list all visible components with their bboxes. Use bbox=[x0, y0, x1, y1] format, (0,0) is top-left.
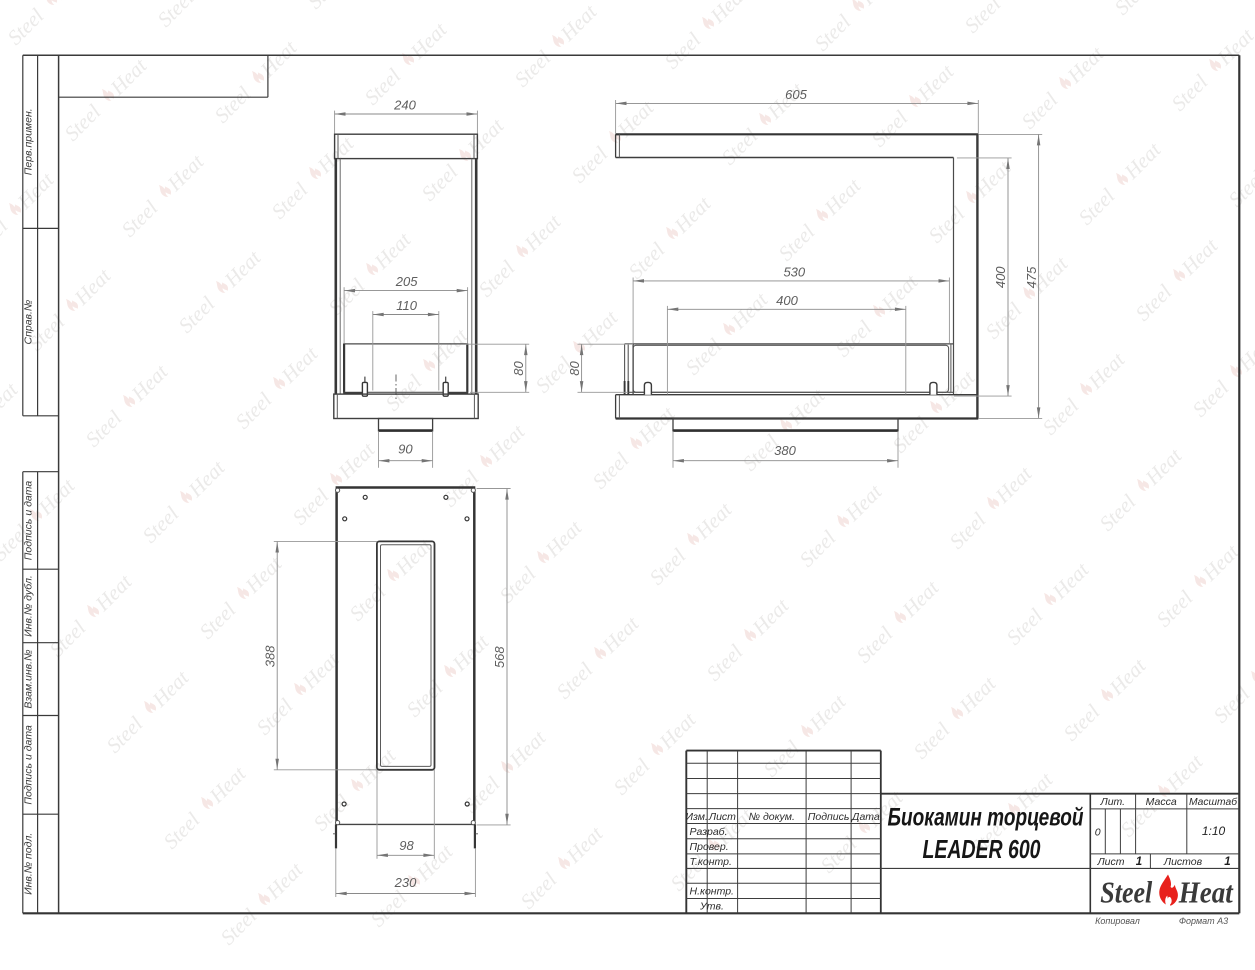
svg-text:80: 80 bbox=[511, 361, 526, 376]
svg-text:Steel: Steel bbox=[1100, 875, 1152, 910]
svg-text:Инв.№ дубл.: Инв.№ дубл. bbox=[23, 575, 35, 637]
svg-text:Биокамин торцевой: Биокамин торцевой bbox=[888, 804, 1084, 832]
svg-text:1: 1 bbox=[1224, 856, 1230, 868]
svg-text:Подпись и дата: Подпись и дата bbox=[23, 481, 35, 561]
svg-text:Подпись и дата: Подпись и дата bbox=[23, 725, 35, 805]
svg-text:Дата: Дата bbox=[851, 811, 880, 823]
svg-text:388: 388 bbox=[262, 645, 277, 667]
svg-text:№ докум.: № докум. bbox=[749, 811, 795, 823]
svg-text:Взам.инв.№: Взам.инв.№ bbox=[23, 650, 35, 709]
svg-text:Изм.: Изм. bbox=[686, 811, 708, 823]
svg-text:LEADER 600: LEADER 600 bbox=[923, 834, 1041, 864]
svg-text:Н.контр.: Н.контр. bbox=[690, 886, 734, 898]
svg-text:80: 80 bbox=[567, 361, 582, 376]
svg-text:Heat: Heat bbox=[1178, 875, 1234, 910]
svg-text:Листов: Листов bbox=[1163, 856, 1203, 868]
svg-text:568: 568 bbox=[492, 646, 507, 668]
svg-text:400: 400 bbox=[776, 293, 798, 308]
svg-text:Формат А3: Формат А3 bbox=[1179, 916, 1228, 926]
svg-text:Лист: Лист bbox=[708, 811, 736, 823]
svg-text:1:10: 1:10 bbox=[1202, 824, 1226, 838]
svg-text:Перв.примен.: Перв.примен. bbox=[23, 108, 35, 175]
svg-text:Справ.№: Справ.№ bbox=[23, 300, 35, 345]
svg-text:Лит.: Лит. bbox=[1100, 796, 1126, 808]
svg-text:Подпись: Подпись bbox=[808, 811, 850, 823]
svg-text:0: 0 bbox=[1095, 827, 1101, 839]
svg-text:205: 205 bbox=[395, 274, 418, 289]
svg-text:530: 530 bbox=[783, 264, 805, 279]
svg-text:90: 90 bbox=[398, 442, 413, 457]
svg-text:Копировал: Копировал bbox=[1095, 916, 1140, 926]
svg-text:Инв.№ подл.: Инв.№ подл. bbox=[23, 833, 35, 895]
svg-text:475: 475 bbox=[1024, 266, 1039, 288]
svg-text:Утв.: Утв. bbox=[699, 901, 724, 913]
svg-text:Разраб.: Разраб. bbox=[690, 826, 728, 838]
svg-text:400: 400 bbox=[993, 266, 1008, 288]
svg-text:Масса: Масса bbox=[1146, 796, 1177, 808]
svg-text:230: 230 bbox=[394, 875, 417, 890]
svg-text:98: 98 bbox=[399, 838, 414, 853]
svg-text:1: 1 bbox=[1136, 856, 1142, 868]
svg-text:380: 380 bbox=[774, 443, 796, 458]
svg-text:Масштаб: Масштаб bbox=[1189, 796, 1238, 808]
svg-text:Провер.: Провер. bbox=[690, 841, 729, 853]
svg-text:Лист: Лист bbox=[1096, 856, 1124, 868]
svg-text:Т.контр.: Т.контр. bbox=[690, 856, 732, 868]
svg-text:110: 110 bbox=[396, 298, 417, 313]
svg-text:605: 605 bbox=[785, 87, 807, 102]
svg-text:240: 240 bbox=[393, 98, 416, 113]
